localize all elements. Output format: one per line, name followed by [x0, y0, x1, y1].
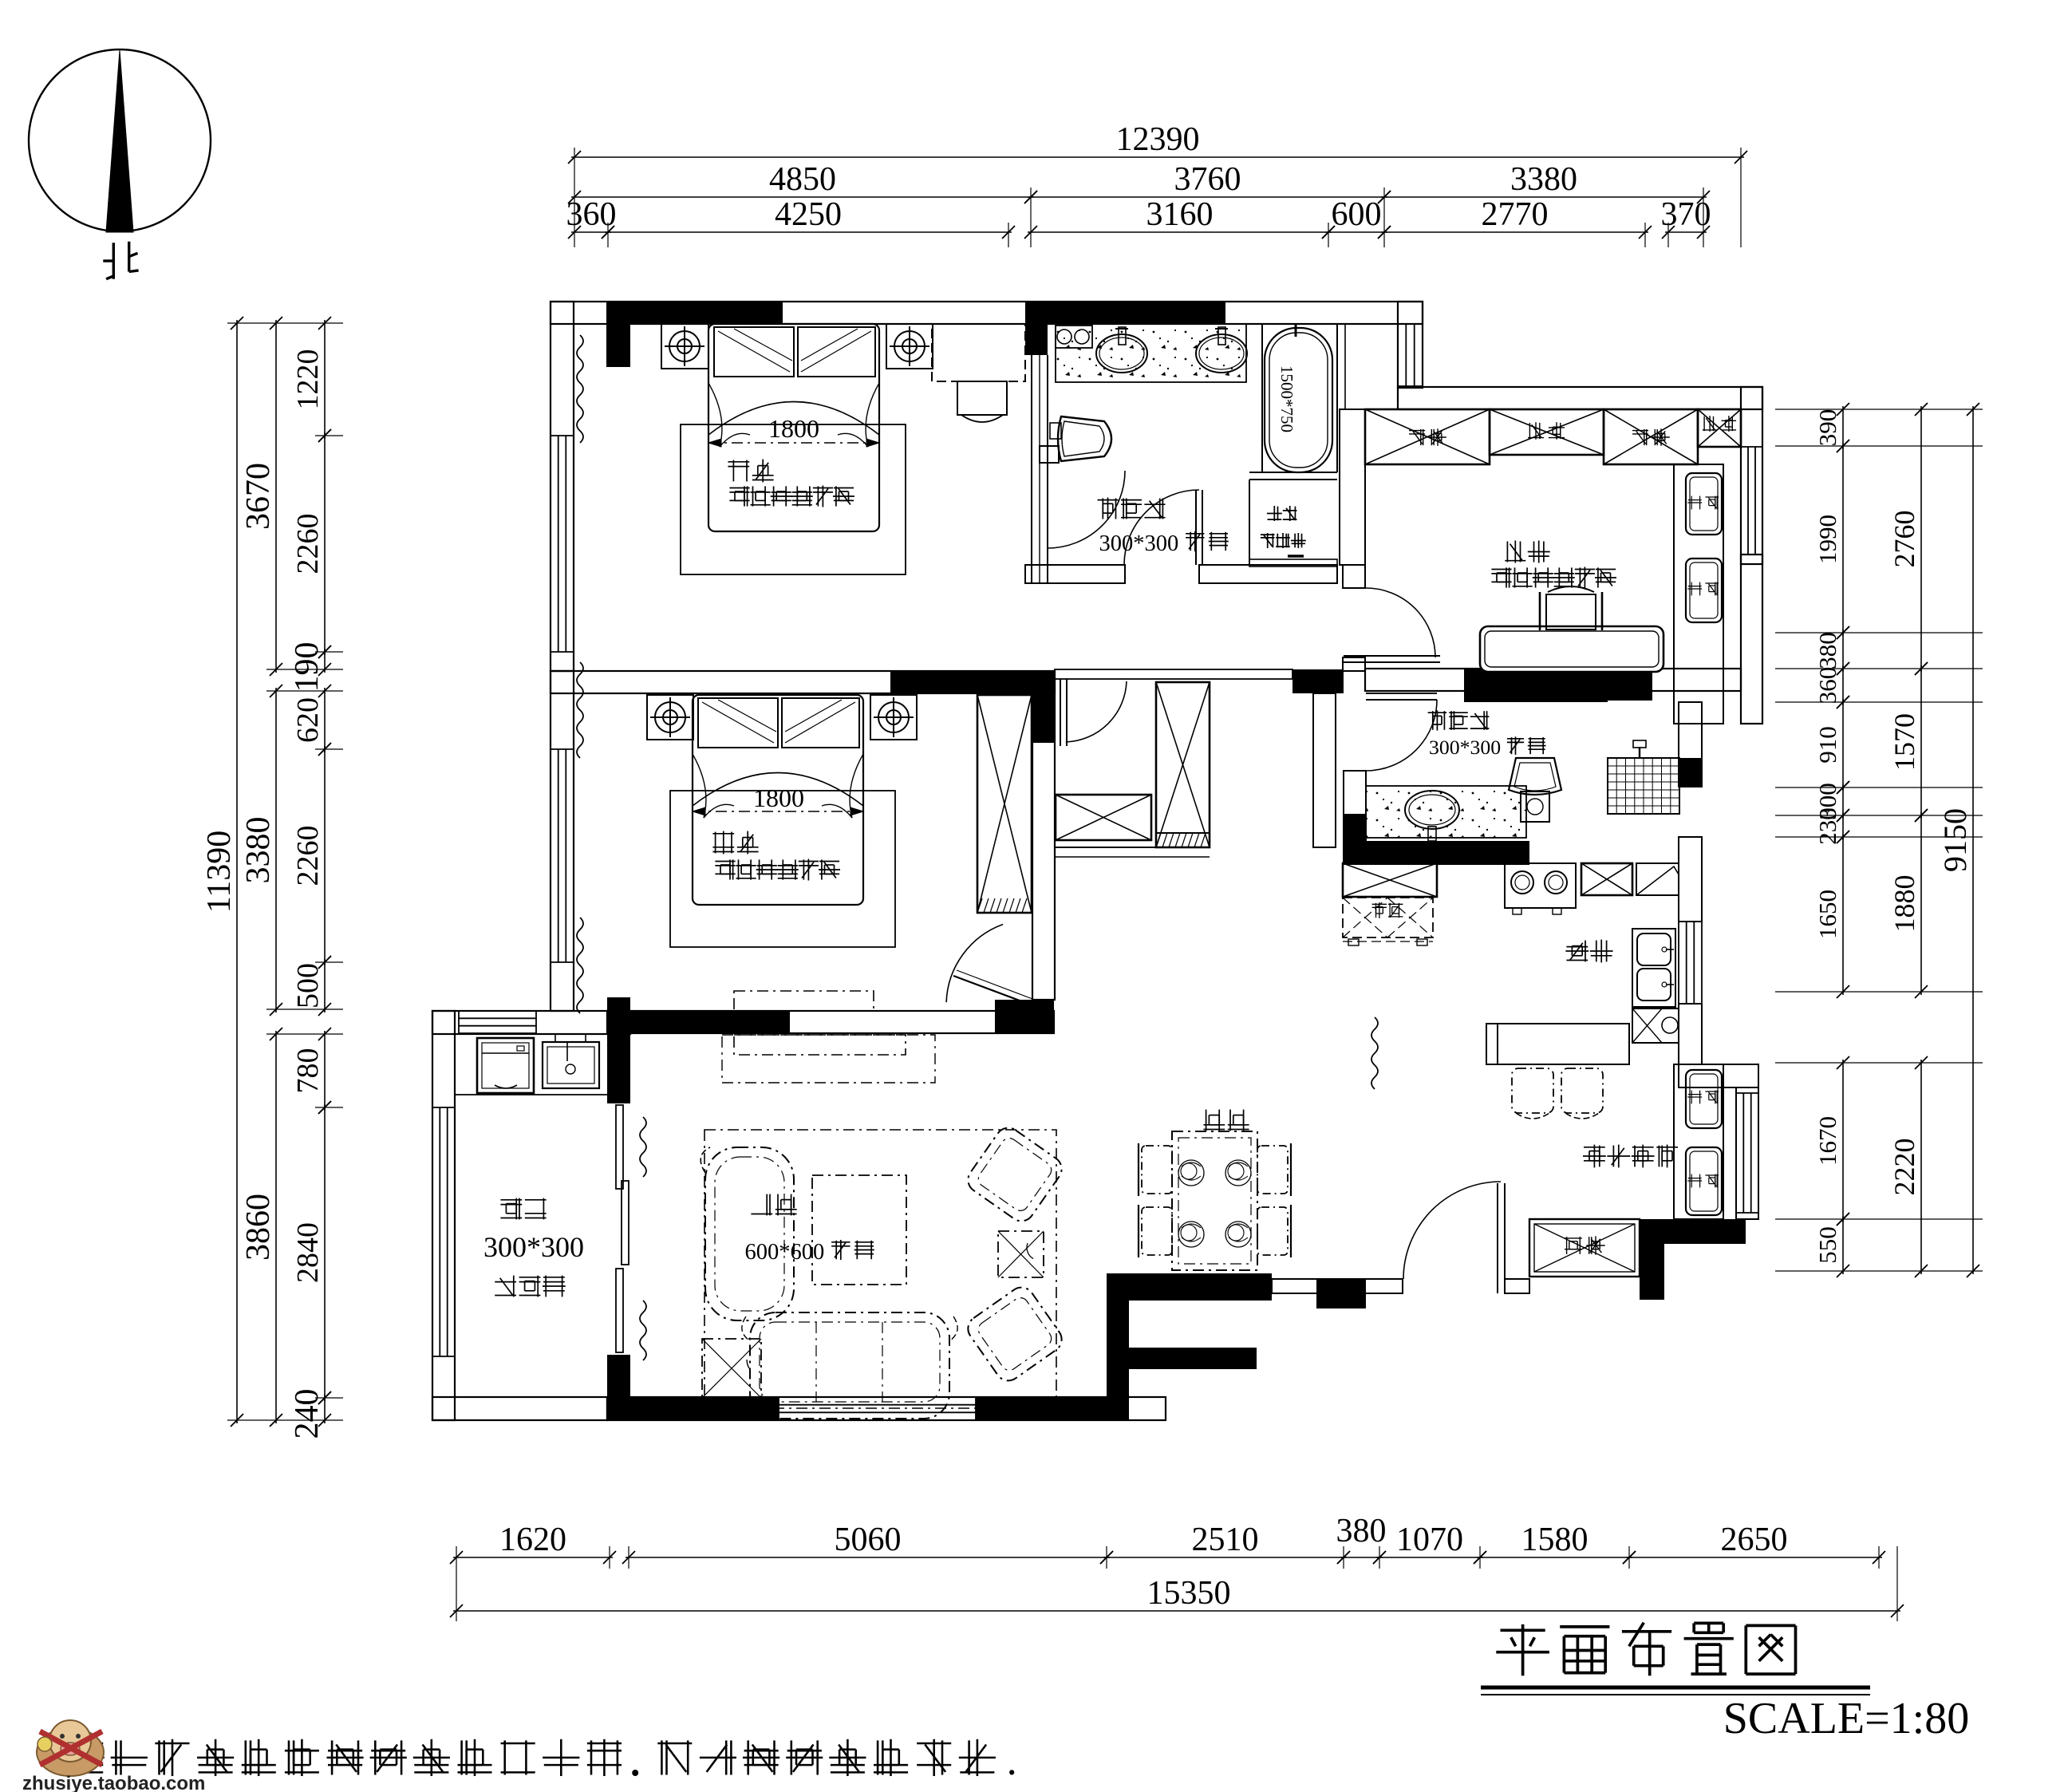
- svg-text:11390: 11390: [201, 831, 238, 913]
- svg-text:5060: 5060: [835, 1522, 902, 1558]
- svg-text:.: .: [1007, 1738, 1017, 1784]
- svg-text:SCALE=1:80: SCALE=1:80: [1723, 1694, 1970, 1743]
- svg-text:2770: 2770: [1482, 196, 1549, 233]
- svg-text:550: 550: [1813, 1226, 1841, 1264]
- svg-text:380: 380: [1336, 1513, 1387, 1549]
- svg-text:300*300: 300*300: [483, 1231, 584, 1263]
- svg-text:1580: 1580: [1521, 1522, 1588, 1558]
- svg-text:4850: 4850: [769, 161, 836, 198]
- svg-text:1800: 1800: [768, 414, 819, 443]
- svg-text:3160: 3160: [1146, 196, 1214, 233]
- svg-text:240: 240: [289, 1389, 326, 1439]
- svg-text:1570: 1570: [1888, 713, 1920, 771]
- svg-text:230: 230: [1813, 807, 1841, 845]
- svg-text:1500*750: 1500*750: [1277, 365, 1296, 432]
- svg-text:3670: 3670: [240, 463, 277, 530]
- svg-text:1620: 1620: [499, 1522, 566, 1558]
- svg-text:2510: 2510: [1192, 1522, 1259, 1558]
- svg-text:390: 390: [1813, 409, 1841, 447]
- svg-text:910: 910: [1813, 726, 1841, 764]
- svg-text:2840: 2840: [291, 1222, 325, 1283]
- svg-text:1990: 1990: [1813, 515, 1841, 564]
- svg-text:12390: 12390: [1116, 121, 1200, 158]
- svg-text:2260: 2260: [291, 826, 325, 886]
- svg-text:3380: 3380: [1510, 161, 1577, 198]
- svg-text:300*300: 300*300: [1429, 736, 1501, 759]
- svg-text:360: 360: [1813, 667, 1841, 705]
- svg-text:4250: 4250: [775, 196, 842, 233]
- svg-text:600*600: 600*600: [744, 1240, 824, 1265]
- svg-text:1880: 1880: [1888, 875, 1920, 933]
- svg-text:2220: 2220: [1888, 1139, 1920, 1196]
- svg-text:1800: 1800: [753, 784, 804, 812]
- svg-text:3380: 3380: [240, 817, 277, 884]
- svg-text:600: 600: [1332, 196, 1382, 233]
- svg-text:3760: 3760: [1174, 161, 1241, 198]
- svg-text:360: 360: [566, 196, 617, 233]
- svg-text:2260: 2260: [291, 514, 325, 574]
- svg-text:190: 190: [289, 642, 326, 693]
- svg-text:380: 380: [1813, 632, 1841, 669]
- svg-text:1220: 1220: [291, 349, 325, 410]
- svg-text:500: 500: [291, 963, 325, 1008]
- svg-text:2650: 2650: [1721, 1522, 1788, 1558]
- svg-text:300*300: 300*300: [1099, 531, 1178, 556]
- svg-text:15350: 15350: [1147, 1575, 1231, 1612]
- svg-text:1650: 1650: [1813, 890, 1841, 939]
- svg-text:9150: 9150: [1937, 808, 1973, 872]
- svg-text:1070: 1070: [1396, 1522, 1463, 1558]
- svg-text:1670: 1670: [1813, 1116, 1841, 1166]
- svg-text:3860: 3860: [240, 1194, 277, 1261]
- svg-text:620: 620: [291, 697, 325, 743]
- svg-text:zhusiye.taobao.com: zhusiye.taobao.com: [22, 1773, 205, 1792]
- svg-text:2760: 2760: [1888, 511, 1920, 568]
- svg-text:780: 780: [291, 1048, 325, 1094]
